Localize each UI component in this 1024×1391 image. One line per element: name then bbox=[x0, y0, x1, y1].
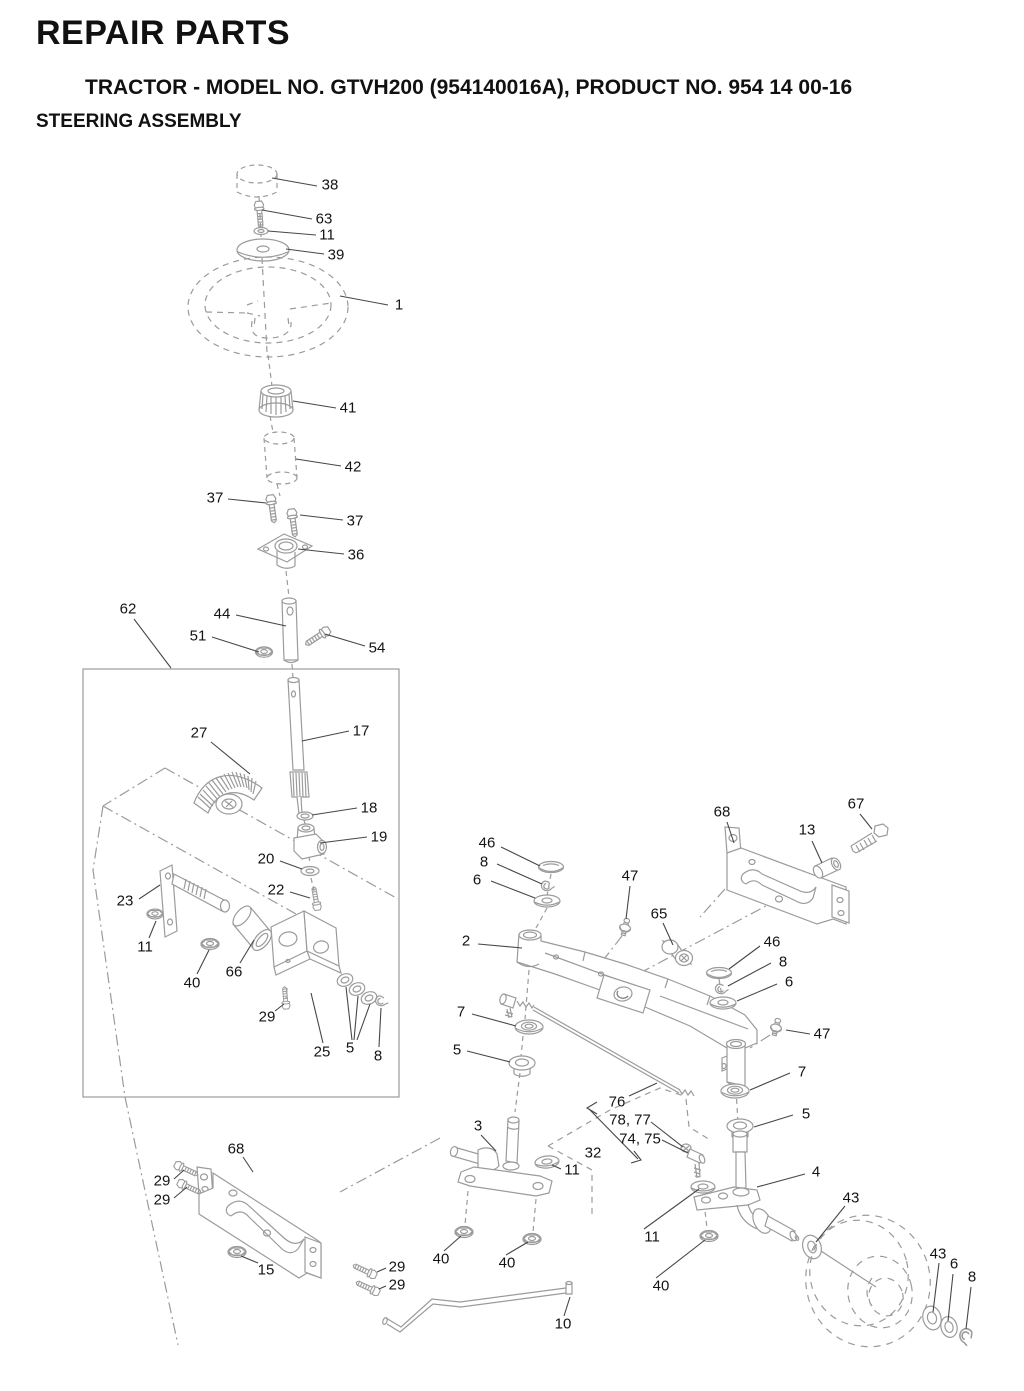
steering-assembly-diagram bbox=[0, 0, 1024, 1391]
part-27-sector-gear bbox=[194, 772, 262, 814]
part-7-washer-left bbox=[515, 1020, 543, 1034]
part-20-washer bbox=[301, 867, 319, 876]
part-8-clip-box bbox=[375, 995, 390, 1007]
part-13-spacer bbox=[811, 856, 842, 879]
part-3-spindle-left bbox=[449, 1117, 552, 1196]
part-18-washer bbox=[297, 812, 313, 820]
part-47-fitting-right bbox=[769, 1017, 784, 1037]
part-47-fitting-left bbox=[618, 917, 633, 937]
part-11-washer-top bbox=[254, 228, 268, 235]
part-41-knurled-nut bbox=[259, 385, 293, 417]
part-25-bracket bbox=[271, 911, 341, 975]
part-11-nut-box bbox=[147, 909, 163, 919]
part-40-nuts bbox=[455, 1227, 718, 1245]
part-6-washer-left bbox=[534, 895, 560, 907]
part-40-nut-box bbox=[201, 939, 219, 950]
part-68-bracket-upper bbox=[725, 827, 849, 924]
part-17-steering-shaft bbox=[288, 678, 309, 815]
part-6-washer-right bbox=[710, 997, 736, 1009]
part-7-washer-right bbox=[721, 1084, 749, 1098]
part-66-bushing bbox=[230, 903, 275, 954]
centerlines bbox=[259, 196, 740, 1232]
part-8-eclip-wheel bbox=[959, 1328, 974, 1347]
part-19-gear-housing bbox=[294, 824, 327, 859]
part-15-nut bbox=[228, 1247, 246, 1258]
range-marker-32 bbox=[587, 1102, 641, 1163]
reference-lines bbox=[93, 768, 779, 1345]
front-wheel bbox=[792, 1202, 944, 1360]
part-36-flange-bearing bbox=[258, 534, 312, 568]
part-8-clip-right bbox=[715, 984, 728, 994]
part-37-bolt-right bbox=[286, 508, 300, 537]
part-37-bolt-left bbox=[265, 494, 279, 523]
part-65-bushing bbox=[662, 940, 693, 966]
part-68-bracket-lower bbox=[197, 1167, 321, 1278]
part-67-bolt bbox=[851, 824, 888, 853]
part-43-washer-right bbox=[920, 1304, 944, 1332]
part-44-shaft-coupler bbox=[282, 598, 298, 663]
part-42-sleeve bbox=[264, 432, 297, 484]
part-46-cap-right bbox=[707, 968, 732, 979]
part-54-bolt bbox=[303, 625, 332, 649]
part-1-steering-wheel bbox=[188, 257, 348, 357]
part-38-cap bbox=[237, 165, 277, 197]
repair-parts-page: REPAIR PARTS TRACTOR - MODEL NO. GTVH200… bbox=[0, 0, 1024, 1391]
part-8-clip-left bbox=[541, 881, 554, 891]
wheel-hub-line bbox=[821, 1251, 876, 1287]
part-22-bolt bbox=[309, 886, 322, 911]
part-10-rod bbox=[382, 1282, 572, 1333]
part-23-shaft-assembly bbox=[160, 865, 230, 937]
part-5-bushing-left bbox=[509, 1056, 535, 1076]
part-46-cap-left bbox=[539, 862, 564, 873]
part-74-75-ball-joint bbox=[681, 1144, 706, 1178]
part-11-washer-right bbox=[691, 1181, 715, 1193]
